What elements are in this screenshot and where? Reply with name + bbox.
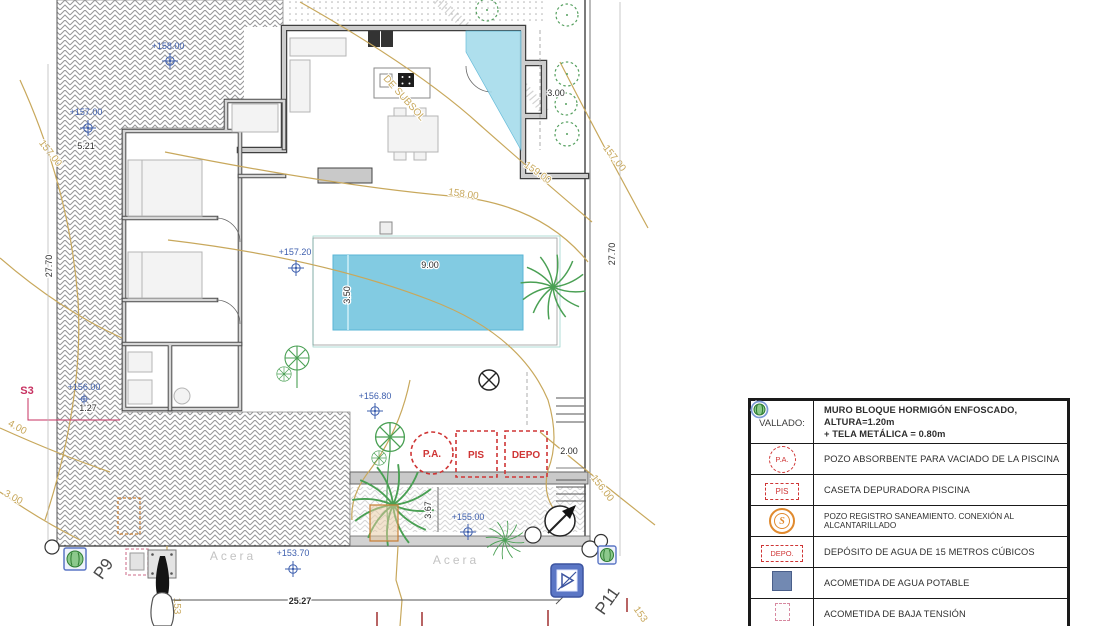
deposito-icon: DEPO. <box>761 545 803 562</box>
site-plan-drawing: 157.00 158.00 159.00 157.00 156.00 4.00 … <box>0 0 660 626</box>
pozo-registro-icon: S <box>774 513 790 529</box>
telefonica-arqueta-icon <box>598 546 616 564</box>
dim-left-height: 27.70 <box>44 255 54 278</box>
telefonica-arqueta-icon <box>64 548 86 570</box>
pozo-absorbente-label: P.A. <box>423 449 441 460</box>
legend-row-pozo-absorbente: P.A. POZO ABSORBENTE PARA VACIADO DE LA … <box>751 444 1068 475</box>
legend-desc-caseta-depuradora: CASETA DEPURADORA PISCINA <box>814 475 1068 506</box>
dim-gate-width: 5.21 <box>77 141 95 151</box>
elevation-top: +158.00 <box>152 41 185 51</box>
sidewalk-label: Acera <box>433 553 479 567</box>
agua-potable-icon <box>772 571 792 591</box>
baja-tension-arqueta-icon <box>126 549 148 575</box>
legend-desc-deposito: DEPÓSITO DE AGUA DE 15 METROS CÚBICOS <box>814 537 1068 568</box>
legend-row-agua-potable: ACOMETIDA DE AGUA POTABLE <box>751 568 1068 599</box>
dim-right-height: 27.70 <box>607 243 617 266</box>
elevation-street-lower: +153.70 <box>277 548 310 558</box>
legend-row-vallado: VALLADO: MURO BLOQUE HORMIGÓN ENFOSCADO,… <box>751 401 1068 444</box>
section-mark-s3: S3 <box>20 385 33 397</box>
sidewalk-label: Acera <box>210 549 256 563</box>
pozo-absorbente-icon: P.A. <box>769 446 796 473</box>
legend-desc-pozo-absorbente: POZO ABSORBENTE PARA VACIADO DE LA PISCI… <box>814 444 1068 475</box>
elevation-house: +157.20 <box>279 247 312 257</box>
dim-tree-offset: 3.00 <box>547 88 565 98</box>
elevation-drive: +157.00 <box>70 107 103 117</box>
dim-frontage: 25.27 <box>289 596 312 606</box>
drain-symbol <box>479 370 499 390</box>
dim-side-offset: 2.00 <box>560 446 578 456</box>
dim-pool-length: 9.00 <box>421 260 439 270</box>
elevation-street-upper: +155.00 <box>452 512 485 522</box>
baja-tension-icon <box>775 603 790 621</box>
legend-table: VALLADO: MURO BLOQUE HORMIGÓN ENFOSCADO,… <box>748 398 1070 626</box>
legend-desc-baja-tension: ACOMETIDA DE BAJA TENSIÓN <box>814 599 1068 626</box>
gravel-band <box>285 0 543 23</box>
legend-desc-pozo-registro: POZO REGISTRO SANEAMIENTO. CONEXIÓN AL A… <box>814 506 1068 537</box>
site-plan-page: 157.00 158.00 159.00 157.00 156.00 4.00 … <box>0 0 1110 626</box>
legend-desc-vallado-line2: + TELA METÁLICA = 0.80m <box>824 428 1063 440</box>
legend-row-deposito: DEPO. DEPÓSITO DE AGUA DE 15 METROS CÚBI… <box>751 537 1068 568</box>
dim-pool-width: 3.50 <box>342 286 352 304</box>
legend-desc-agua-potable: ACOMETIDA DE AGUA POTABLE <box>814 568 1068 599</box>
legend-row-baja-tension: ACOMETIDA DE BAJA TENSIÓN <box>751 599 1068 626</box>
elevation-terrace: +156.80 <box>359 391 392 401</box>
elevation-slab: +156.00 <box>68 382 101 392</box>
caseta-piscina-label: PIS <box>468 450 484 461</box>
legend-row-pozo-registro: S POZO REGISTRO SANEAMIENTO. CONEXIÓN AL… <box>751 506 1068 537</box>
deposito-label: DEPO <box>512 450 541 461</box>
utility-box-center <box>370 505 398 541</box>
legend-row-caseta-depuradora: PIS CASETA DEPURADORA PISCINA <box>751 475 1068 506</box>
electric-panel-icon <box>551 564 583 597</box>
dim-step-width: 1.27 <box>79 403 97 413</box>
caseta-depuradora-icon: PIS <box>765 483 799 500</box>
dim-walk-width: 3.67 <box>423 501 433 519</box>
north-arrow-icon <box>545 505 576 536</box>
legend-key-vallado: VALLADO: <box>759 418 805 429</box>
legend-desc-vallado-line1: MURO BLOQUE HORMIGÓN ENFOSCADO, ALTURA=1… <box>824 404 1063 428</box>
